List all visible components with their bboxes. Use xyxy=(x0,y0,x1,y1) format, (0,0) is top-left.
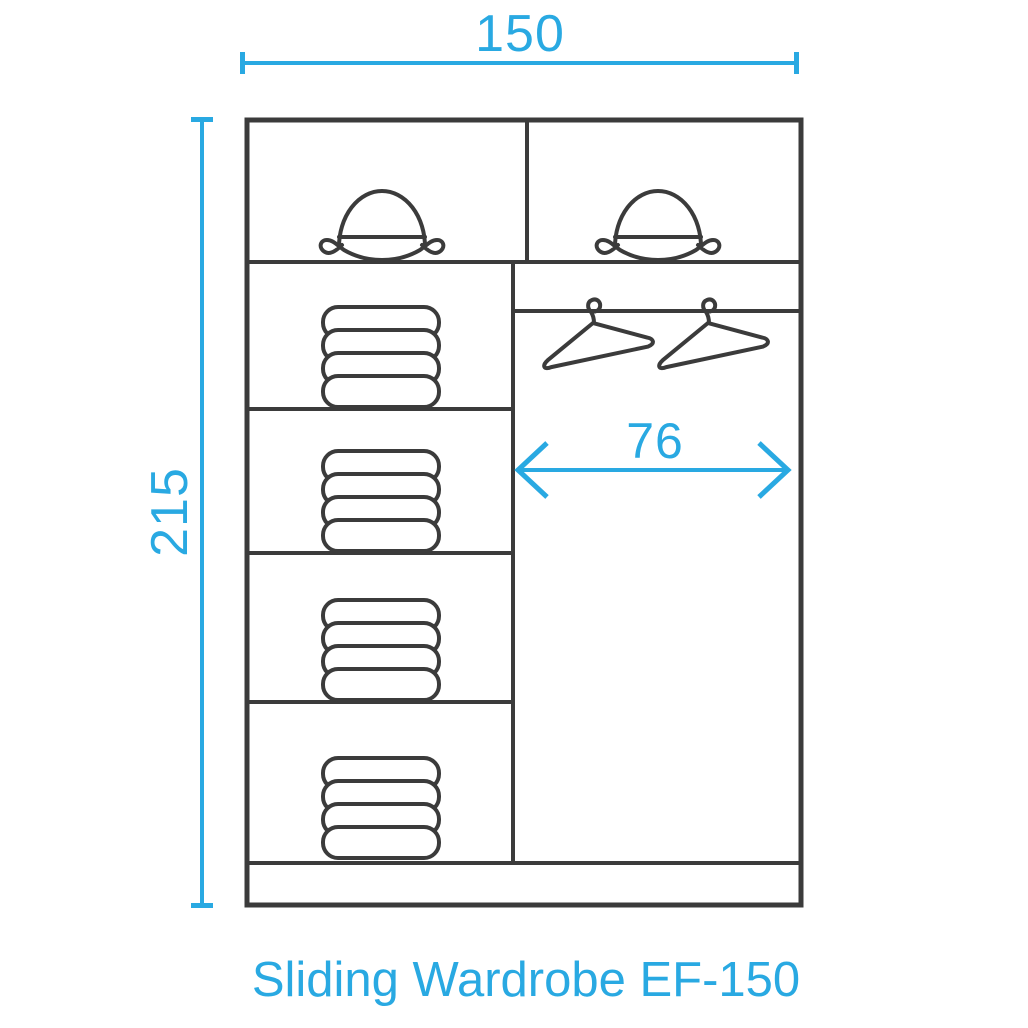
height-dimension-tick xyxy=(191,117,213,122)
width-dimension-line xyxy=(242,61,797,65)
height-dimension-value: 215 xyxy=(120,462,220,562)
diagram-title: Sliding Wardrobe EF-150 xyxy=(0,954,1028,1008)
height-dimension-line xyxy=(200,119,204,905)
folded-clothes-icon xyxy=(323,600,439,700)
hanging-width-value: 76 xyxy=(595,416,715,466)
width-dimension-tick xyxy=(794,52,799,74)
bowler-hat-icon xyxy=(321,191,444,260)
bowler-hat-icon xyxy=(597,191,720,260)
diagram-canvas: 150 215 76 Sliding Wardrobe EF-150 xyxy=(0,0,1028,1028)
folded-clothes-icon xyxy=(323,451,439,551)
height-dimension-tick xyxy=(191,903,213,908)
folded-clothes-icon xyxy=(323,758,439,858)
folded-clothes-icon xyxy=(323,307,439,407)
width-dimension-value: 150 xyxy=(420,8,620,60)
width-dimension-tick xyxy=(240,52,245,74)
